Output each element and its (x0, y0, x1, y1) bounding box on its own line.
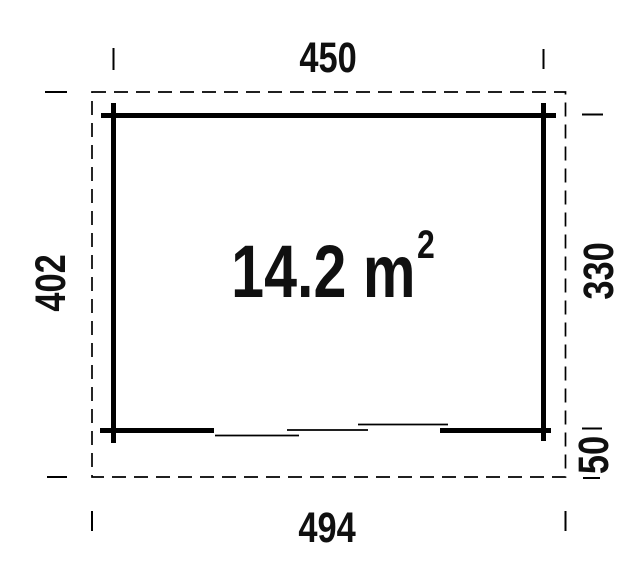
dimension-label-right-inner-depth: 330 (575, 242, 622, 299)
dimension-label-bottom-width: 494 (298, 504, 356, 551)
area-label: 14.2 m2 (231, 222, 435, 314)
dimension-label-left-depth: 402 (27, 254, 74, 311)
dimension-label-right-overhang: 50 (570, 436, 617, 474)
floor-plan-drawing: 450 494 402 330 50 14.2 m2 (0, 0, 639, 580)
floor-plan-page: 450 494 402 330 50 14.2 m2 (0, 0, 639, 580)
area-value: 14.2 m (231, 231, 415, 314)
dimension-label-top-width: 450 (299, 34, 356, 81)
area-superscript: 2 (417, 222, 435, 267)
